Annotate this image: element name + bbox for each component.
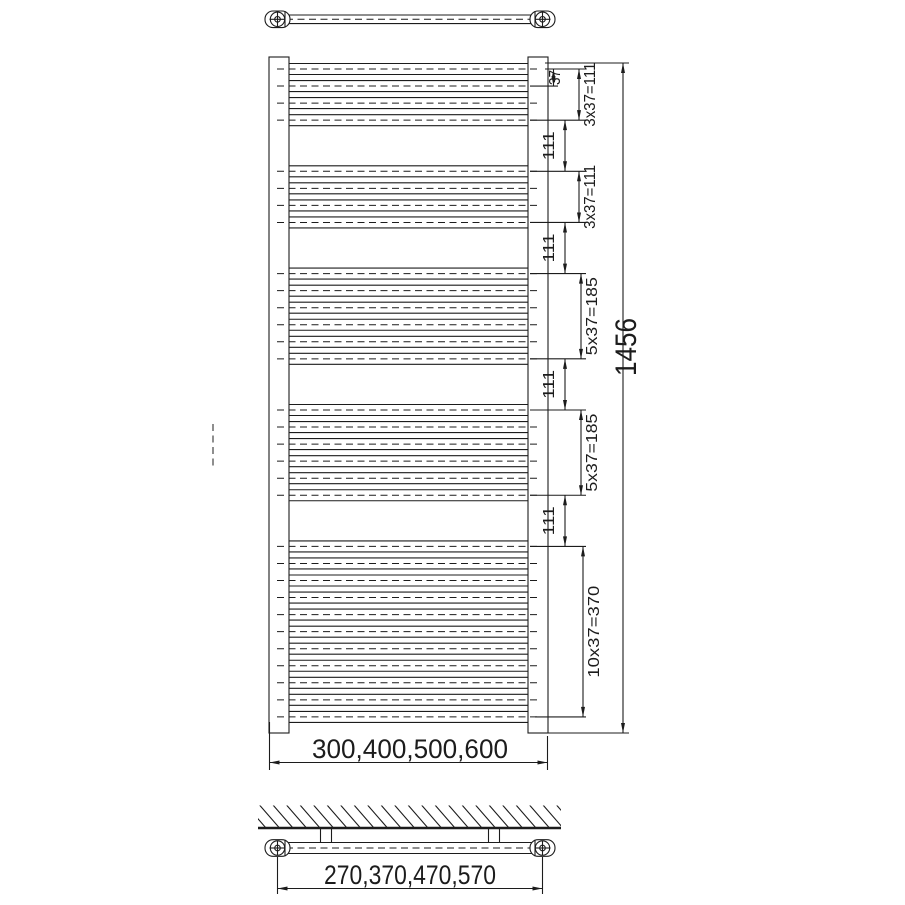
heating-tube [277,405,538,416]
dim-label-group-gap-1: 111 [541,234,558,263]
dimension-arrow [563,120,567,130]
dimension-arrow [270,761,280,765]
dimension-arrow [278,887,288,891]
dimension-arrow [563,400,567,410]
mounting-bracket [321,829,332,843]
dim-label-group-span-2: 5x37=185 [584,277,601,355]
dim-label-overall-height: 1456 [610,318,643,376]
dim-label-first-tube-gap: 37 [547,70,564,85]
dimension-arrow [563,536,567,546]
heating-tube [277,711,538,722]
heating-tube [277,268,538,279]
dimension-arrow [579,274,583,284]
dim-label-group-gap-2: 111 [541,370,558,399]
mounting-bracket [489,829,500,843]
width-dimension: 300,400,500,600 [270,722,548,770]
heating-tube [277,490,538,501]
heating-tube [277,285,538,296]
wall-mount-side-view: 270,370,470,570 [246,805,577,894]
dimension-arrow [577,171,581,181]
top-view [265,11,555,28]
heating-tube [277,541,538,552]
heating-tube [277,558,538,569]
heating-tube [277,217,538,228]
heating-tube [277,81,538,92]
dimension-arrow [563,264,567,274]
dimension-arrow [577,69,581,79]
dim-label-group-span-4: 10x37=370 [586,585,603,677]
dimension-arrow [577,110,581,120]
dimension-arrow [563,359,567,369]
heating-tube [277,302,538,313]
dimension-arrow [563,495,567,505]
dimension-arrow [533,887,543,891]
heating-tube [277,319,538,330]
heating-tube [277,660,538,671]
dimension-arrow [621,723,625,733]
dimension-arrow [579,410,583,420]
end-fitting [265,840,290,857]
dimension-arrow [581,546,585,556]
heating-tube [277,473,538,484]
dimension-arrow [579,485,583,495]
dim-label-overall-width: 300,400,500,600 [312,734,508,764]
end-fitting [265,11,290,28]
dimension-arrow [563,161,567,171]
heating-tube [277,115,538,126]
dim-label-group-span-3: 5x37=185 [584,414,601,492]
heating-tube [277,200,538,211]
heating-tube [277,353,538,364]
dimension-arrow [563,222,567,232]
radiator-technical-drawing: 373x37=1113x37=1115x37=1855x37=18510x37=… [0,0,905,905]
heating-tube [277,64,538,75]
dim-label-bracket-distance: 270,370,470,570 [324,860,496,890]
heating-tube [277,609,538,620]
heating-tube [277,422,538,433]
heating-tube [277,456,538,467]
front-view [213,57,548,733]
end-fitting [530,11,555,28]
heating-tube [277,677,538,688]
heating-tube [277,575,538,586]
radiator-drawing-page: { "drawing": { "colors": { "line": "#1c1… [0,0,905,905]
dim-label-group-gap-3: 111 [541,506,558,535]
dim-label-group-span-0: 3x37=111 [582,63,599,127]
heating-tube [277,166,538,177]
heating-tube [277,694,538,705]
heating-tube [277,643,538,654]
wall-hatch [246,805,577,828]
dimension-arrow [581,707,585,717]
dimension-arrow [538,761,548,765]
dim-label-group-span-1: 3x37=111 [582,165,599,229]
end-fitting [530,840,555,857]
dimension-arrow [621,63,625,73]
heating-tube [277,336,538,347]
dimension-arrow [579,349,583,359]
heating-tube [277,183,538,194]
heating-tube [277,98,538,109]
heating-tube [277,439,538,450]
heating-tube [277,626,538,637]
dimension-arrow [577,212,581,222]
dim-label-group-gap-0: 111 [541,131,558,160]
heating-tube [277,592,538,603]
